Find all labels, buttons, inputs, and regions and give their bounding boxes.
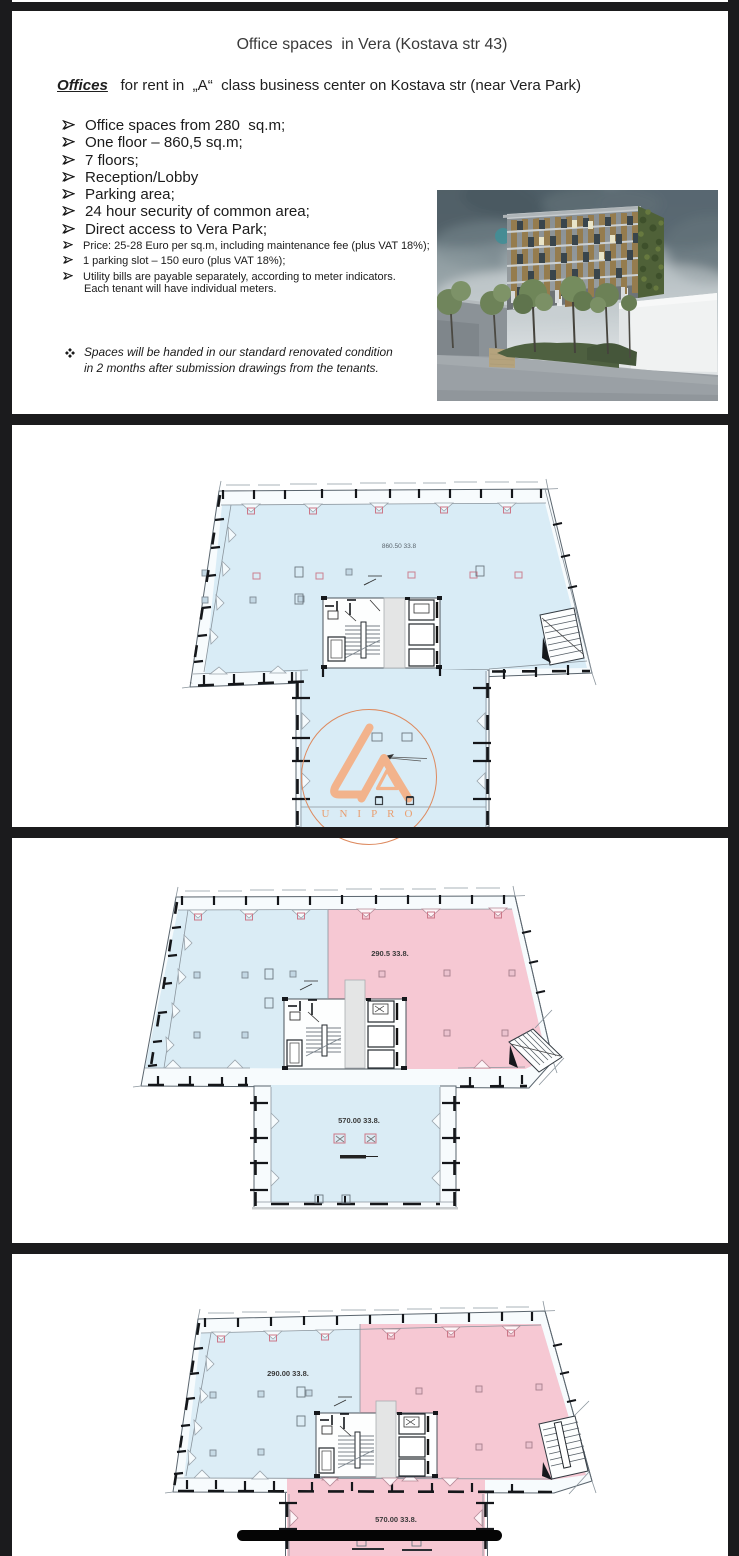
- svg-text:290.5 33.8.: 290.5 33.8.: [371, 949, 409, 958]
- svg-text:570.00 33.8.: 570.00 33.8.: [375, 1515, 417, 1524]
- svg-text:860.50 33.8: 860.50 33.8: [382, 543, 417, 550]
- svg-text:UNIPRO: UNIPRO: [322, 808, 423, 820]
- svg-text:570.00 33.8.: 570.00 33.8.: [338, 1116, 380, 1125]
- svg-text:290.00 33.8.: 290.00 33.8.: [267, 1369, 309, 1378]
